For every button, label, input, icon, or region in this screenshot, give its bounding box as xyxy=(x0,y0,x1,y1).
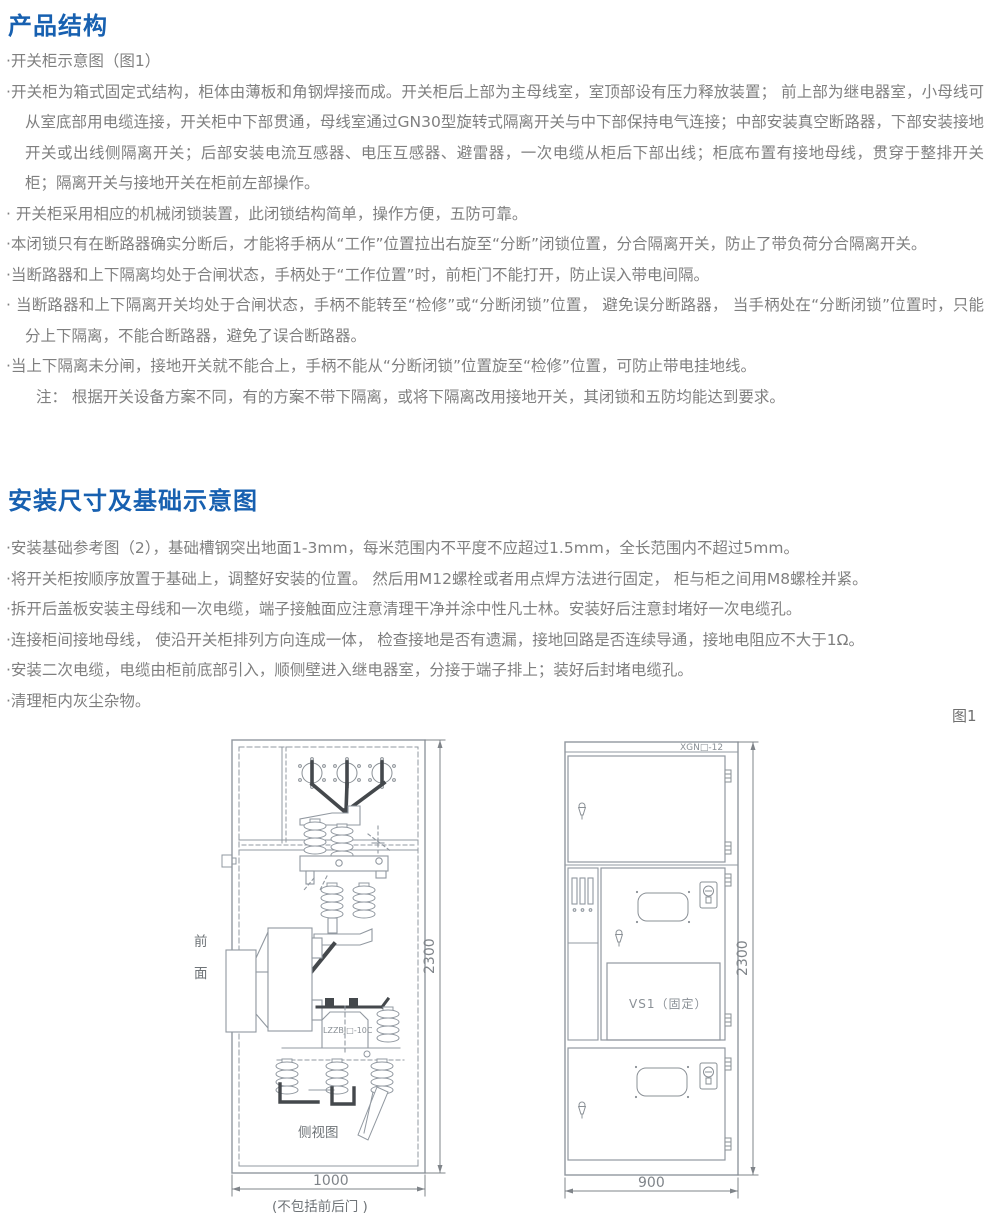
inspection-window xyxy=(636,891,690,923)
product-structure-heading: 产品结构 xyxy=(8,6,108,41)
model-label: XGN□-12 xyxy=(680,743,723,753)
side-view-diagram: LZZBJ□-10C 前 面 侧视图 xyxy=(182,728,492,1228)
bullet-item: ·当断路器和上下隔离均处于合闸状态，手柄处于“工作位置”时，前柜门不能打开，防止… xyxy=(6,260,984,291)
svg-text:1000: 1000 xyxy=(313,1173,349,1189)
width-dimension: 1000 xyxy=(232,1173,425,1196)
installation-list: ·安装基础参考图（2），基础槽钢突出地面1-3mm，每米范围内不平度不应超过1.… xyxy=(6,533,984,716)
figure-caption: 图1 xyxy=(952,705,977,726)
hinge-icon xyxy=(725,1014,731,1026)
note-item: 注： 根据开关设备方案不同，有的方案不带下隔离，或将下隔离改用接地开关，其闭锁和… xyxy=(6,382,984,413)
hinge-icon xyxy=(725,1138,731,1150)
bullet-item: ·安装基础参考图（2），基础槽钢突出地面1-3mm，每米范围内不平度不应超过1.… xyxy=(6,533,984,564)
svg-text:900: 900 xyxy=(638,1175,665,1191)
side-view-label: 侧视图 xyxy=(298,1125,339,1141)
svg-text:2300: 2300 xyxy=(735,940,751,976)
mechanism-box xyxy=(300,856,388,890)
catalog-page: 产品结构 ·开关柜示意图（图1） ·开关柜为箱式固定式结构，柜体由薄板和角钢焊接… xyxy=(0,0,988,1230)
width-dimension: 900 xyxy=(565,1175,738,1198)
width-note: (不包括前后门 ) xyxy=(272,1198,368,1215)
hinge-icon xyxy=(725,770,731,782)
vacuum-breaker-body xyxy=(226,928,322,1032)
cable-compartment xyxy=(276,1048,404,1140)
bullet-item: ·本闭锁只有在断路器确实分断后，才能将手柄从“工作”位置拉出右旋至“分断”闭锁位… xyxy=(6,229,984,260)
lamp-indicator-icon xyxy=(700,1063,717,1089)
front-label-bottom: 面 xyxy=(194,966,208,982)
door-handle-icon xyxy=(616,930,623,946)
bullet-item: · 开关柜采用相应的机械闭锁装置，此闭锁结构简单，操作方便，五防可靠。 xyxy=(6,199,984,230)
cabinet-outline xyxy=(565,742,738,1175)
hinge-icon xyxy=(725,874,731,886)
bullet-item: · 当断路器和上下隔离开关均处于合闸状态，手柄不能转至“检修”或“分断闭锁”位置… xyxy=(6,290,984,351)
upper-door xyxy=(568,756,731,862)
door-handle-icon xyxy=(579,803,586,819)
breaker-panel: VS1（固定） xyxy=(607,963,731,1040)
product-structure-list: ·开关柜示意图（图1） ·开关柜为箱式固定式结构，柜体由薄板和角钢焊接而成。开关… xyxy=(6,46,984,412)
bullet-item: ·开关柜示意图（图1） xyxy=(6,46,984,77)
bullet-item: ·拆开后盖板安装主母线和一次电缆，端子接触面应注意清理干净并涂中性凡士林。安装好… xyxy=(6,594,984,625)
front-view-diagram: XGN□-12 V xyxy=(545,730,785,1230)
left-instrument-column xyxy=(568,868,598,1040)
bullet-item: ·当上下隔离未分闸，接地开关就不能合上，手柄不能从“分断闭锁”位置旋至“检修”位… xyxy=(6,351,984,382)
door-handle-icon xyxy=(579,1102,586,1118)
breaker-label: VS1（固定） xyxy=(629,996,707,1011)
bullet-item: ·开关柜为箱式固定式结构，柜体由薄板和角钢焊接而成。开关柜后上部为主母线室，室顶… xyxy=(6,77,984,199)
middle-door xyxy=(601,868,731,1040)
svg-text:2300: 2300 xyxy=(422,938,438,974)
hinge-icon xyxy=(725,1058,731,1070)
bullet-item: ·清理柜内灰尘杂物。 xyxy=(6,686,984,717)
hinge-icon xyxy=(725,842,731,854)
ct-label: LZZBJ□-10C xyxy=(323,1026,373,1035)
lower-door xyxy=(568,1048,731,1160)
front-label-top: 前 xyxy=(194,933,208,950)
bullet-item: ·安装二次电缆，电缆由柜前底部引入，顺侧壁进入继电器室，分接于端子排上；装好后封… xyxy=(6,655,984,686)
bullet-item: ·连接柜间接地母线， 使沿开关柜排列方向连成一体， 检查接地是否有遗漏，接地回路… xyxy=(6,625,984,656)
current-transformer: LZZBJ□-10C xyxy=(317,998,399,1054)
bullet-item: ·将开关柜按顺序放置于基础上，调整好安装的位置。 然后用M12螺栓或者用点焊方法… xyxy=(6,564,984,595)
upper-disconnector xyxy=(300,806,392,862)
installation-heading: 安装尺寸及基础示意图 xyxy=(8,481,258,516)
middle-insulators xyxy=(314,883,375,945)
inspection-window xyxy=(635,1066,689,1098)
lamp-indicator-icon xyxy=(700,882,717,908)
